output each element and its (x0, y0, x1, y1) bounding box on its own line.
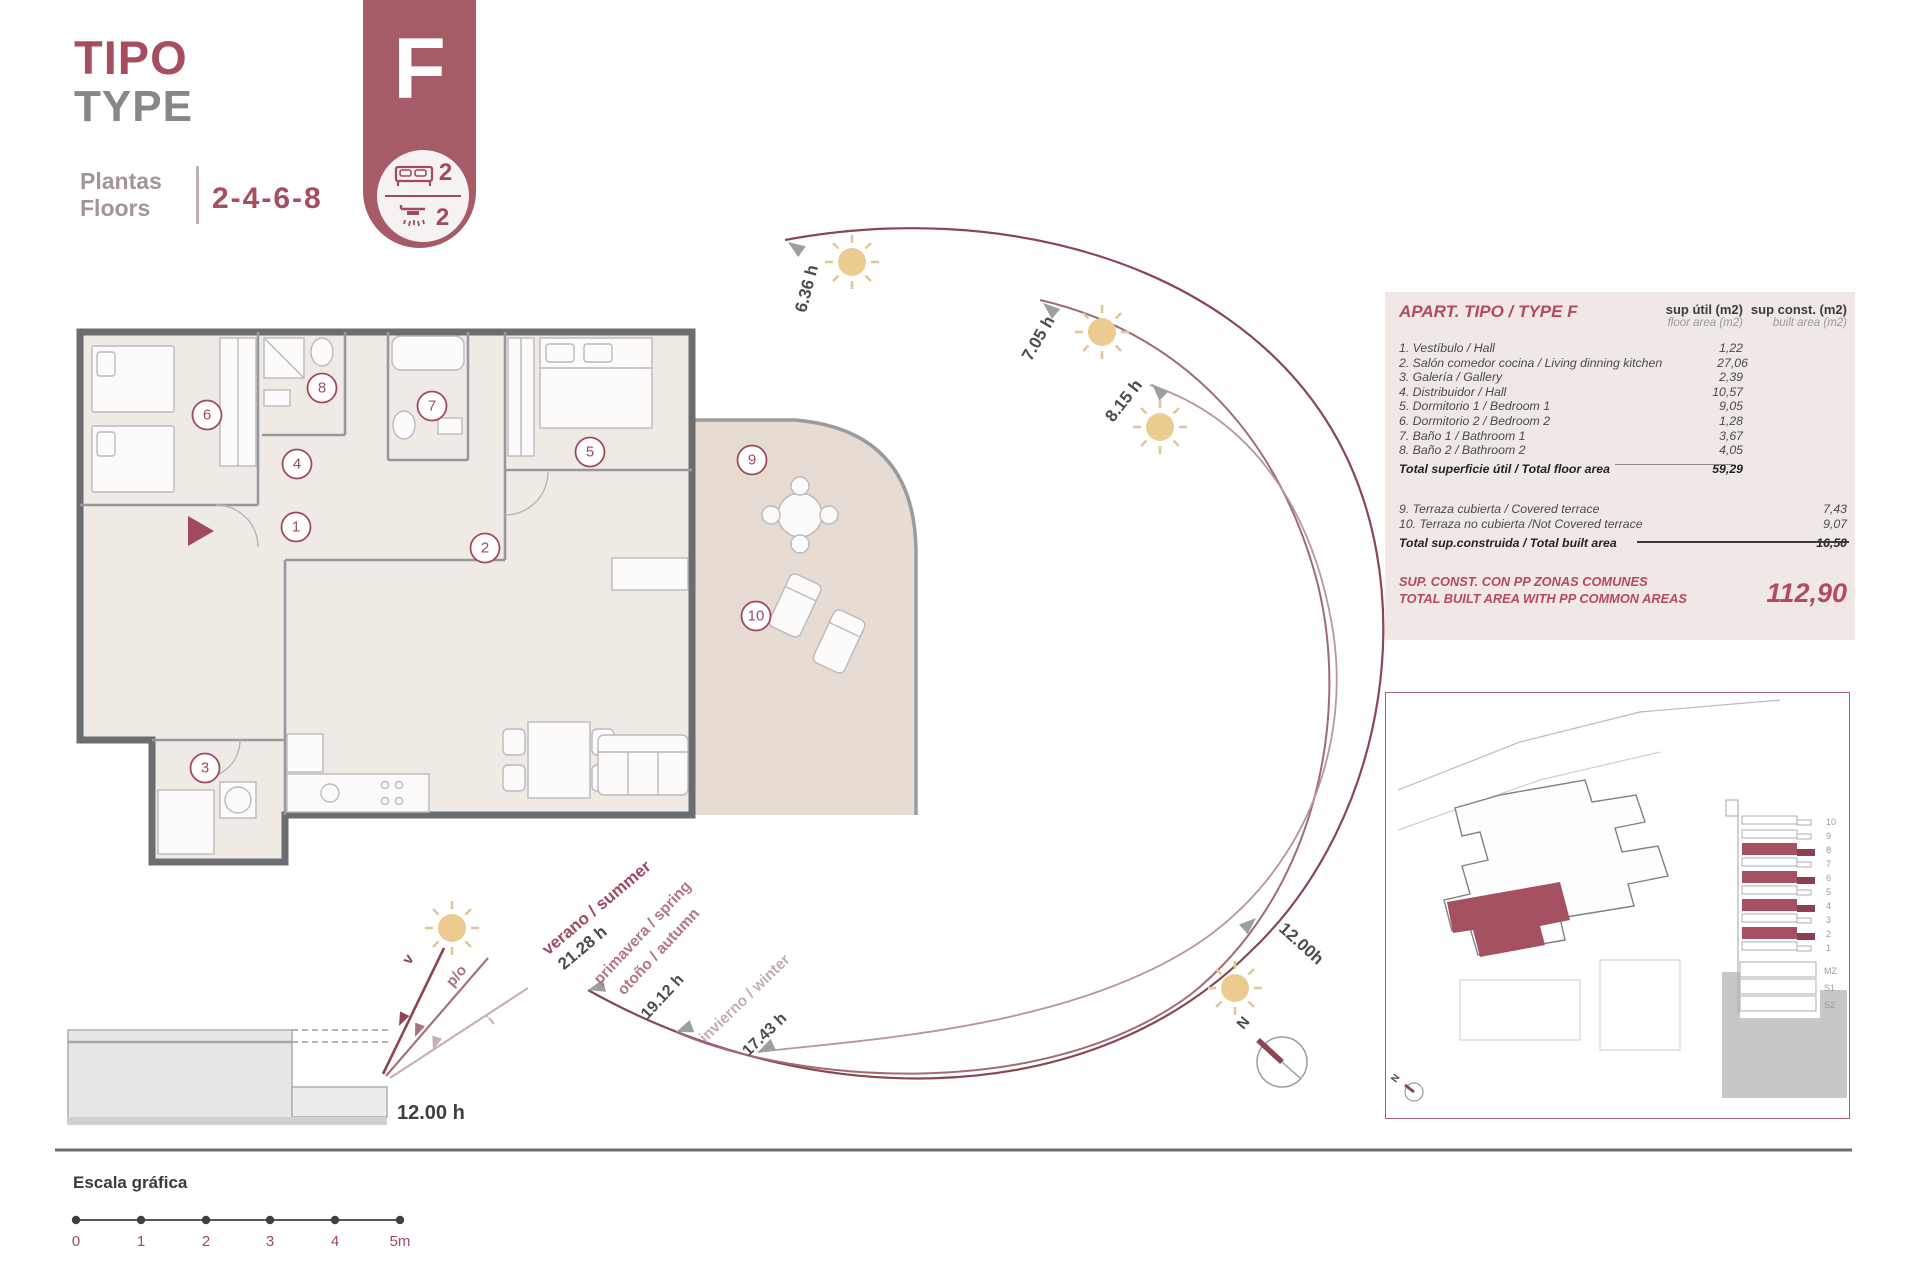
ray-label-invierno: i (484, 1013, 498, 1029)
table-row: 1. Vestíbulo / Hall1,22 (1385, 341, 1855, 356)
area-table-panel: APART. TIPO / TYPE F sup útil (m2) floor… (1385, 292, 1855, 640)
noon-time-label: 12.00h (1275, 919, 1327, 969)
room-number-1: 1 (282, 513, 311, 542)
sun-icon (425, 901, 479, 955)
col-const-sub: built area (m2) (1743, 317, 1847, 329)
ray-label-verano: v (399, 951, 418, 968)
summary-block: SUP. CONST. CON PP ZONAS COMUNES TOTAL B… (1399, 574, 1847, 609)
table-row: 8. Baño 2 / Bathroom 24,05 (1385, 443, 1855, 458)
site-inset-frame (1385, 692, 1850, 1119)
svg-text:7: 7 (428, 398, 436, 415)
svg-text:3: 3 (201, 760, 209, 777)
table-row: 5. Dormitorio 1 / Bedroom 19,05 (1385, 399, 1855, 414)
terrace-row: 9. Terraza cubierta / Covered terrace7,4… (1385, 502, 1855, 517)
svg-text:8: 8 (318, 380, 326, 397)
table-row: 7. Baño 1 / Bathroom 13,67 (1385, 429, 1855, 444)
scale-tick: 1 (137, 1233, 145, 1250)
sunrise-time-spring: 7.05 h (1018, 313, 1059, 364)
floor-plan: 1 2 3 4 5 6 7 8 9 10 (80, 332, 916, 862)
svg-text:6: 6 (203, 407, 211, 424)
season-labels: verano / summer 21.28 h primavera / spri… (538, 857, 793, 1060)
scale-tick: 2 (202, 1233, 210, 1250)
svg-text:5: 5 (586, 444, 594, 461)
sun-icon (825, 235, 879, 289)
north-label: N (1234, 1013, 1254, 1032)
table-row: 6. Dormitorio 2 / Bedroom 21,28 (1385, 414, 1855, 429)
season-winter-time: 17.43 h (739, 1010, 790, 1060)
sun-icon (1075, 305, 1129, 359)
sun-icon (1133, 400, 1187, 454)
room-number-7: 7 (418, 392, 447, 421)
svg-text:10: 10 (748, 608, 765, 625)
room-number-4: 4 (283, 450, 312, 479)
summary-label-en: TOTAL BUILT AREA WITH PP COMMON AREAS (1399, 591, 1687, 608)
sun-icon (1208, 961, 1262, 1015)
sunrise-time-summer: 6.36 h (791, 263, 822, 314)
svg-text:9: 9 (748, 452, 756, 469)
north-compass: N (1234, 1013, 1307, 1087)
room-number-8: 8 (308, 374, 337, 403)
col-util-title: sup útil (m2) (1653, 302, 1743, 317)
section-diagram: v p/o i 12.00 h (68, 948, 528, 1125)
scale-title: Escala gráfica (73, 1173, 188, 1192)
room-number-10: 10 (742, 602, 771, 631)
table-row: 4. Distribuidor / Hall10,57 (1385, 385, 1855, 400)
terrace-row: 10. Terraza no cubierta /Not Covered ter… (1385, 517, 1855, 532)
scale-tick: 5m (390, 1233, 411, 1250)
room-number-9: 9 (738, 446, 767, 475)
col-util-sub: floor area (m2) (1653, 317, 1743, 329)
svg-text:1: 1 (292, 519, 300, 536)
svg-text:2: 2 (481, 540, 489, 557)
scale-tick: 0 (72, 1233, 80, 1250)
summary-value: 112,90 (1766, 578, 1847, 609)
table-row: 3. Galería / Gallery2,39 (1385, 370, 1855, 385)
season-spring-time: 19.12 h (638, 971, 687, 1022)
ray-label-primavera-otono: p/o (443, 962, 470, 990)
scale-bar: Escala gráfica 0 1 2 3 4 5m (72, 1173, 411, 1250)
scale-tick: 3 (266, 1233, 274, 1250)
room-number-2: 2 (471, 534, 500, 563)
svg-text:4: 4 (293, 456, 301, 473)
table-title: APART. TIPO / TYPE F (1399, 302, 1653, 329)
summary-label-es: SUP. CONST. CON PP ZONAS COMUNES (1399, 574, 1687, 591)
section-time-label: 12.00 h (397, 1102, 465, 1124)
room-number-5: 5 (576, 438, 605, 467)
table-row: 2. Salón comedor cocina / Living dinning… (1385, 356, 1855, 371)
room-number-6: 6 (193, 401, 222, 430)
scale-tick: 4 (331, 1233, 339, 1250)
sunrise-time-winter: 8.15 h (1101, 376, 1146, 426)
col-const-title: sup const. (m2) (1743, 302, 1847, 317)
room-number-3: 3 (191, 754, 220, 783)
